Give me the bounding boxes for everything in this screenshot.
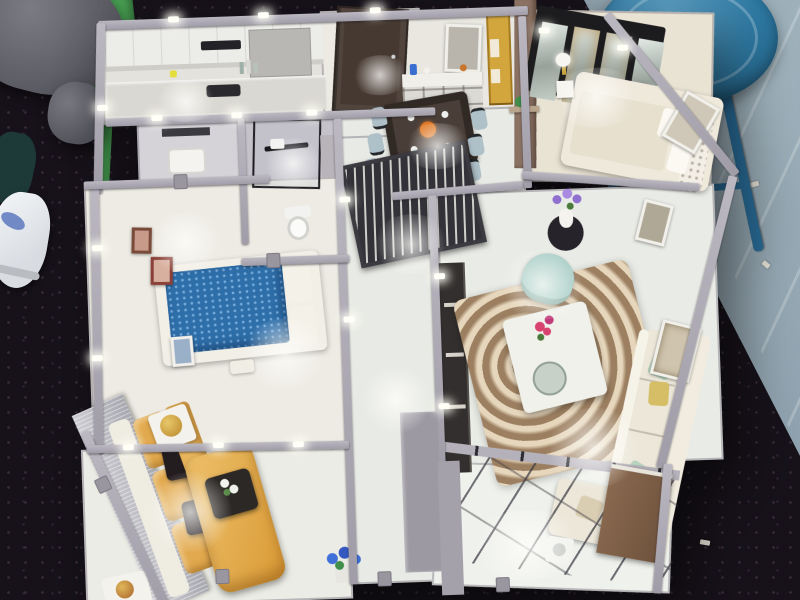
- gold-display-cabinet: [486, 13, 513, 106]
- wall-post: [173, 174, 188, 189]
- wall-light: [97, 105, 108, 111]
- yellow-sponge: [170, 70, 177, 77]
- wall-light: [370, 7, 381, 13]
- wall-light: [293, 441, 304, 447]
- wall-light: [123, 444, 134, 450]
- photo-scale-model-scene: [0, 0, 800, 600]
- white-vase: [559, 209, 574, 228]
- counter-bottle: [246, 60, 250, 74]
- wall-face-balcony: [438, 461, 465, 596]
- wall-light: [434, 273, 445, 279]
- counter-bottle: [254, 62, 258, 73]
- range-hood-slot: [201, 40, 241, 50]
- gold-pillow: [648, 381, 670, 406]
- console-shelf: [446, 352, 464, 357]
- wall-light: [213, 442, 224, 448]
- vanity-sink: [167, 147, 206, 174]
- wall-light: [339, 196, 350, 202]
- wall-post: [496, 577, 511, 592]
- wall-light: [343, 316, 354, 322]
- wall-post: [377, 571, 392, 586]
- vanity-mirror: [162, 127, 210, 137]
- wall-light: [538, 27, 549, 33]
- counter-bottle: [239, 62, 243, 74]
- wall-light: [258, 12, 269, 18]
- wall-light: [92, 355, 103, 361]
- cabinet-niche: [490, 39, 500, 57]
- wall-post: [215, 569, 230, 584]
- kitchen-tall-cabinet: [248, 28, 312, 78]
- wall-light: [231, 112, 242, 118]
- wall-post: [266, 253, 281, 268]
- bed-left-pillow: [283, 263, 313, 304]
- bedroom-left-art: [170, 335, 195, 367]
- apartment-scale-model: [108, 4, 728, 600]
- blue-vase: [410, 64, 417, 75]
- wall-light: [617, 45, 628, 51]
- wall-light: [92, 245, 103, 251]
- console-shelf: [448, 404, 466, 409]
- wall-light: [306, 109, 317, 115]
- wall-light: [168, 16, 179, 22]
- wall-face-corridor: [400, 411, 444, 572]
- cabinet-niche: [491, 69, 500, 83]
- wall-light: [439, 403, 450, 409]
